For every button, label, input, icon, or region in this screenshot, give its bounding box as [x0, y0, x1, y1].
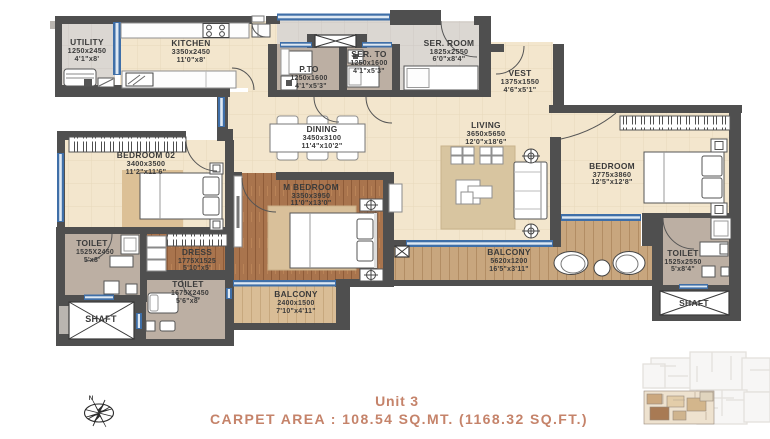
svg-text:5'6"x8': 5'6"x8': [176, 298, 200, 305]
svg-text:P.TO: P.TO: [299, 64, 319, 74]
svg-text:11'4"x10'2": 11'4"x10'2": [301, 141, 342, 150]
svg-text:12'0"x18'6": 12'0"x18'6": [465, 137, 507, 146]
svg-text:1525X2450: 1525X2450: [76, 249, 114, 256]
svg-text:6'0"x8'4": 6'0"x8'4": [433, 54, 466, 63]
svg-text:BALCONY: BALCONY: [487, 247, 531, 257]
svg-text:SHAFT: SHAFT: [85, 314, 117, 324]
svg-text:7'10"x4'11": 7'10"x4'11": [276, 308, 316, 315]
svg-text:SER. TO: SER. TO: [351, 49, 387, 59]
svg-text:12'5"x12'8": 12'5"x12'8": [591, 177, 633, 186]
svg-text:1250x1600: 1250x1600: [290, 75, 327, 82]
svg-text:4'6"x5'1": 4'6"x5'1": [504, 85, 537, 94]
svg-text:TOILET: TOILET: [172, 279, 204, 289]
svg-text:5'x8'4": 5'x8'4": [671, 266, 695, 273]
svg-text:11'2"x11'6": 11'2"x11'6": [126, 167, 167, 176]
svg-text:BALCONY: BALCONY: [274, 289, 318, 299]
svg-text:5620x1200: 5620x1200: [490, 258, 527, 265]
svg-text:11'0"x8': 11'0"x8': [177, 55, 206, 64]
svg-text:5'10"x5': 5'10"x5': [183, 265, 211, 272]
svg-text:4'1"x5'3": 4'1"x5'3": [353, 68, 385, 75]
svg-text:N: N: [89, 395, 94, 402]
svg-text:Unit 3: Unit 3: [375, 393, 419, 409]
svg-text:SHAFT: SHAFT: [679, 298, 709, 308]
svg-text:4'1"x8': 4'1"x8': [75, 54, 100, 63]
svg-text:1775X1525: 1775X1525: [178, 258, 216, 265]
svg-text:TOILET: TOILET: [76, 238, 108, 248]
svg-text:1675X2450: 1675X2450: [171, 290, 209, 297]
svg-text:TOILET: TOILET: [667, 248, 699, 258]
svg-text:DRESS: DRESS: [182, 247, 212, 257]
svg-text:4'1"x5'3": 4'1"x5'3": [295, 83, 327, 90]
svg-text:11'0"x13'0": 11'0"x13'0": [290, 198, 331, 207]
svg-text:5'x8': 5'x8': [84, 257, 100, 264]
svg-text:CARPET AREA : 108.54 SQ.MT. (1: CARPET AREA : 108.54 SQ.MT. (1168.32 SQ.…: [210, 411, 588, 427]
svg-text:1250x1600: 1250x1600: [350, 60, 387, 67]
svg-text:2400x1500: 2400x1500: [277, 300, 314, 307]
svg-text:16'5"x3'11": 16'5"x3'11": [489, 266, 529, 273]
svg-text:1525x2550: 1525x2550: [664, 259, 701, 266]
